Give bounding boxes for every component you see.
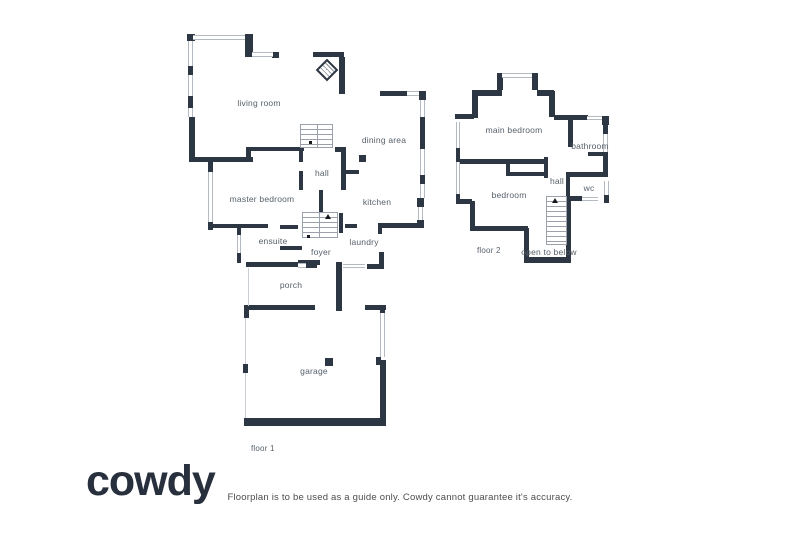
- room-label-porch: porch: [280, 280, 302, 290]
- room-label-laundry: laundry: [349, 237, 378, 247]
- wall-segment: [188, 96, 193, 108]
- room-label-main-bedroom: main bedroom: [486, 125, 543, 135]
- wall-segment: [456, 194, 460, 204]
- wall-segment: [249, 147, 304, 151]
- wall-segment: [245, 305, 315, 310]
- wall-segment: [306, 263, 317, 268]
- window-segment: [208, 172, 213, 222]
- wall-segment: [506, 172, 548, 176]
- wall-segment: [380, 360, 386, 420]
- window-segment: [380, 313, 385, 357]
- window-segment: [582, 197, 598, 201]
- wall-segment: [419, 91, 426, 100]
- wall-segment: [246, 262, 298, 267]
- wall-segment: [603, 125, 608, 134]
- edge-line: [245, 318, 246, 364]
- wall-segment: [588, 152, 604, 156]
- wall-segment: [299, 151, 303, 162]
- stairs-marker: [309, 141, 312, 144]
- wall-segment: [532, 73, 538, 90]
- wall-segment: [280, 225, 298, 229]
- wall-segment: [602, 116, 609, 125]
- wall-segment: [237, 228, 241, 235]
- wall-segment: [470, 226, 528, 231]
- window-segment: [502, 73, 532, 78]
- wall-segment: [417, 198, 424, 207]
- wall-segment: [420, 175, 425, 184]
- wall-segment: [549, 91, 555, 117]
- wall-segment: [189, 157, 253, 162]
- stairs-floor2-icon: [546, 196, 567, 245]
- window-segment: [420, 100, 425, 117]
- wall-segment: [188, 66, 193, 75]
- wall-segment: [244, 305, 249, 318]
- window-segment: [343, 264, 365, 268]
- wall-segment: [237, 253, 241, 263]
- floor2-label: floor 2: [477, 246, 501, 255]
- room-label-master-bedroom: master bedroom: [230, 194, 295, 204]
- wall-segment: [272, 52, 279, 58]
- wall-segment: [243, 364, 248, 373]
- wall-segment: [339, 213, 343, 233]
- wall-segment: [378, 223, 424, 228]
- room-label-ensuite: ensuite: [259, 236, 288, 246]
- wall-segment: [566, 172, 608, 177]
- window-segment: [252, 52, 273, 57]
- window-segment: [456, 122, 460, 148]
- wall-segment: [380, 91, 407, 96]
- room-label-kitchen: kitchen: [363, 197, 391, 207]
- room-label-dining-area: dining area: [362, 135, 406, 145]
- window-segment: [418, 207, 423, 220]
- fireplace-icon: [316, 59, 339, 82]
- room-label-living-room: living room: [237, 98, 280, 108]
- window-segment: [456, 162, 460, 194]
- floor1-label: floor 1: [251, 444, 275, 453]
- wall-segment: [380, 305, 385, 313]
- wall-segment: [458, 159, 548, 164]
- edge-line: [248, 268, 249, 306]
- window-segment: [193, 35, 245, 40]
- wall-segment: [345, 224, 357, 228]
- window-segment: [407, 91, 419, 96]
- wall-segment: [470, 201, 475, 231]
- room-label-foyer: foyer: [311, 247, 331, 257]
- wall-segment: [456, 148, 460, 162]
- wall-segment: [378, 228, 382, 234]
- wall-segment: [336, 262, 342, 311]
- window-segment: [587, 116, 602, 120]
- window-segment: [237, 235, 241, 253]
- room-label-garage: garage: [300, 366, 328, 376]
- wall-segment: [420, 117, 425, 149]
- wall-segment: [604, 195, 609, 203]
- stairs-hall-icon: [300, 124, 333, 148]
- kitchen-column: [359, 155, 366, 162]
- wall-segment: [339, 57, 345, 94]
- room-label-open-to-below: open to below: [521, 247, 577, 257]
- window-segment: [188, 41, 193, 66]
- window-segment: [420, 149, 425, 175]
- wall-segment: [280, 246, 302, 250]
- stairs-marker: [307, 235, 310, 238]
- room-label-wc: wc: [584, 183, 595, 193]
- garage-post: [325, 358, 333, 366]
- window-segment: [188, 108, 193, 117]
- wall-segment: [379, 252, 384, 269]
- wall-segment: [189, 117, 195, 162]
- window-segment: [298, 263, 306, 268]
- floorplan-canvas: living room dining area hall kitchen mas…: [0, 0, 800, 540]
- wall-segment: [455, 114, 474, 119]
- disclaimer-text: Floorplan is to be used as a guide only.…: [0, 492, 800, 503]
- wall-segment: [208, 162, 213, 172]
- window-segment: [420, 184, 425, 198]
- stairs-up-arrow-icon: [552, 198, 558, 203]
- room-label-hall-floor1: hall: [315, 168, 329, 178]
- stairs-up-arrow-icon: [325, 214, 331, 219]
- wall-segment: [346, 170, 359, 174]
- room-label-bathroom: bathroom: [571, 141, 609, 151]
- room-label-hall-floor2: hall: [550, 176, 564, 186]
- wall-segment: [299, 171, 303, 190]
- wall-segment: [524, 257, 571, 263]
- window-segment: [188, 75, 193, 96]
- edge-line: [245, 373, 246, 418]
- wall-segment: [244, 418, 386, 426]
- room-label-bedroom: bedroom: [492, 190, 527, 200]
- window-segment: [604, 181, 609, 195]
